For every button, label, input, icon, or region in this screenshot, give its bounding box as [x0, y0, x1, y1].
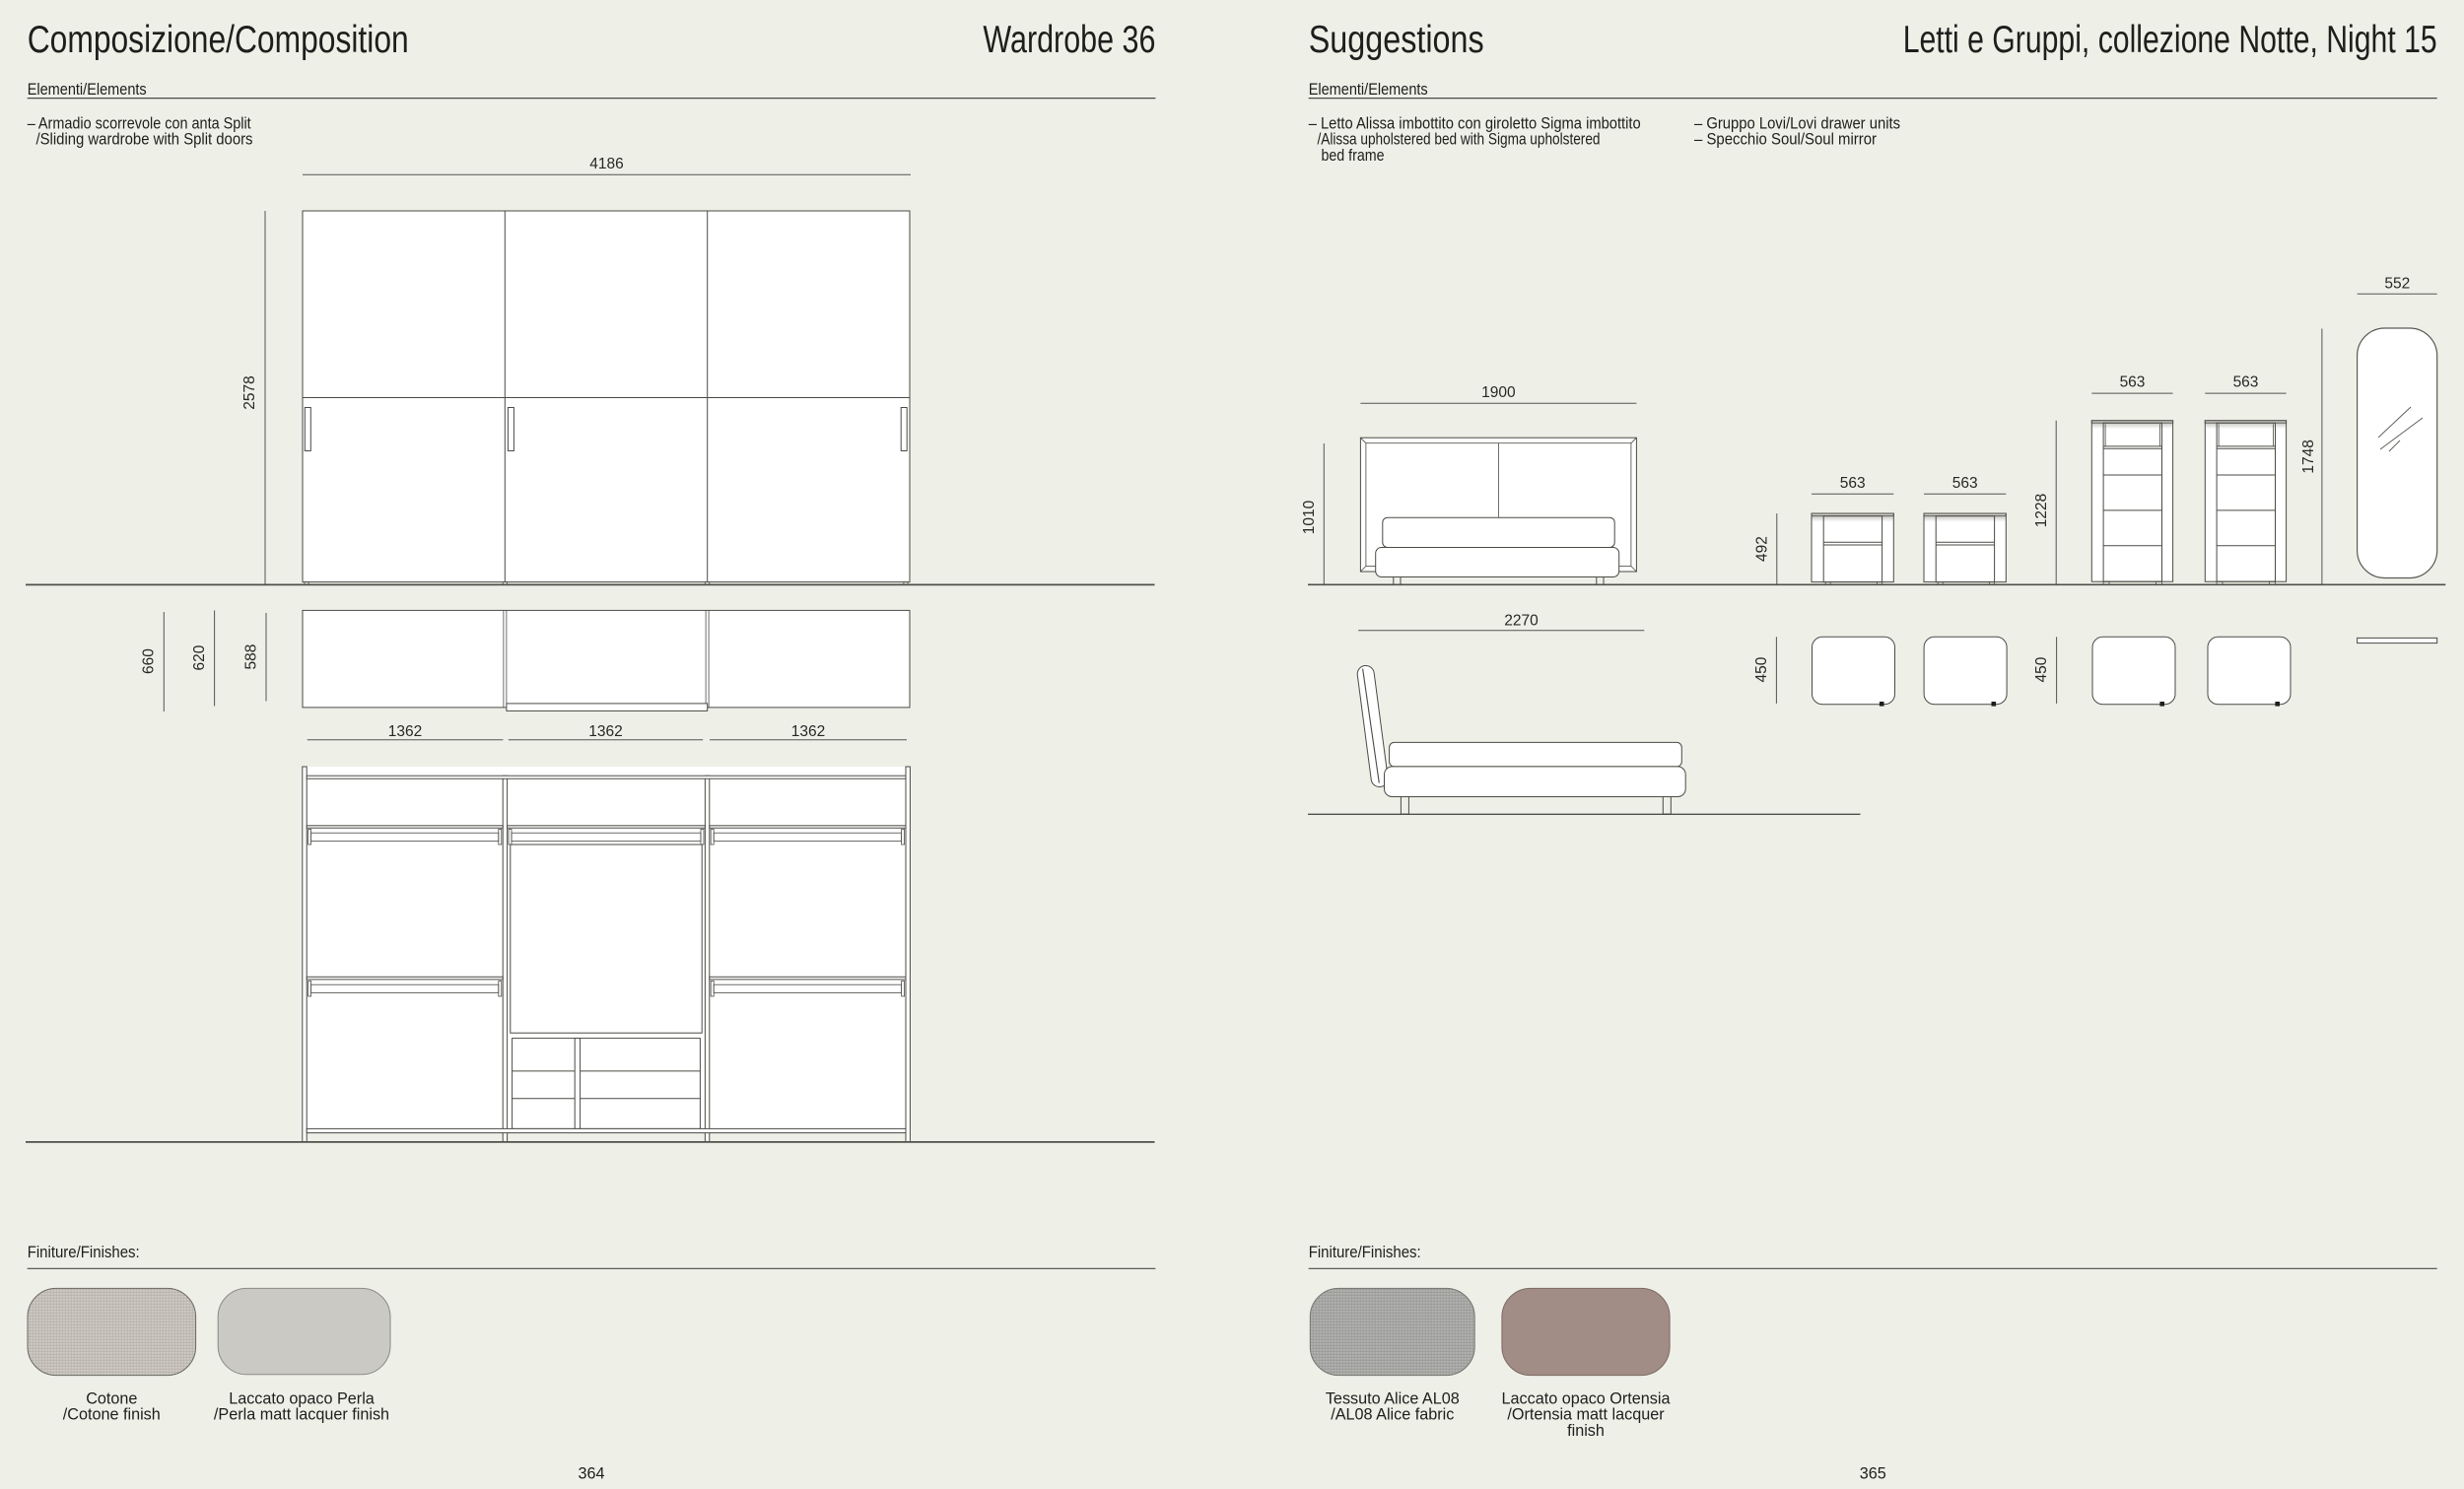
svg-text:Letti e Gruppi, collezione Not: Letti e Gruppi, collezione Notte, Night … [1903, 19, 2437, 61]
svg-text:2578: 2578 [241, 375, 258, 409]
svg-text:588: 588 [242, 644, 259, 670]
svg-text:Suggestions: Suggestions [1309, 19, 1484, 61]
svg-text:364: 364 [578, 1464, 604, 1482]
svg-text:– Specchio Soul/Soul mirror: – Specchio Soul/Soul mirror [1694, 131, 1878, 149]
svg-text:/Perla matt lacquer finish: /Perla matt lacquer finish [214, 1406, 389, 1424]
svg-text:Elementi/Elements: Elementi/Elements [1309, 80, 1428, 99]
svg-text:Finiture/Finishes:: Finiture/Finishes: [28, 1244, 140, 1261]
svg-text:/AL08 Alice fabric: /AL08 Alice fabric [1331, 1406, 1454, 1424]
svg-text:Composizione/Composition: Composizione/Composition [28, 19, 409, 61]
svg-text:450: 450 [1753, 656, 1770, 682]
svg-text:492: 492 [1753, 536, 1770, 562]
svg-text:/Sliding wardrobe with Split d: /Sliding wardrobe with Split doors [36, 131, 253, 149]
svg-text:563: 563 [1840, 475, 1866, 492]
svg-text:1010: 1010 [1301, 500, 1318, 534]
svg-text:450: 450 [2033, 656, 2050, 682]
svg-text:/Alissa upholstered bed with S: /Alissa upholstered bed with Sigma uphol… [1318, 131, 1601, 149]
svg-text:1748: 1748 [2300, 440, 2317, 473]
svg-text:Elementi/Elements: Elementi/Elements [28, 80, 147, 99]
svg-text:563: 563 [1952, 475, 1978, 492]
svg-text:620: 620 [191, 644, 208, 670]
svg-text:bed frame: bed frame [1322, 147, 1385, 165]
svg-text:2270: 2270 [1504, 613, 1539, 630]
svg-text:– Gruppo Lovi/Lovi drawer unit: – Gruppo Lovi/Lovi drawer units [1694, 114, 1900, 132]
svg-text:– Armadio scorrevole con anta: – Armadio scorrevole con anta Split [28, 114, 251, 132]
svg-text:1362: 1362 [388, 723, 422, 740]
svg-text:Wardrobe 36: Wardrobe 36 [983, 19, 1155, 61]
svg-text:Finiture/Finishes:: Finiture/Finishes: [1309, 1244, 1421, 1261]
svg-text:660: 660 [141, 648, 158, 674]
svg-text:563: 563 [2120, 374, 2146, 391]
svg-text:4186: 4186 [589, 156, 623, 172]
svg-text:/Cotone finish: /Cotone finish [63, 1406, 161, 1424]
svg-text:1900: 1900 [1481, 384, 1516, 401]
svg-text:552: 552 [2384, 276, 2410, 293]
svg-text:365: 365 [1860, 1464, 1886, 1482]
svg-text:finish: finish [1567, 1422, 1605, 1440]
svg-text:1362: 1362 [588, 723, 622, 740]
svg-text:1362: 1362 [791, 723, 825, 740]
svg-text:– Letto Alissa imbottito con g: – Letto Alissa imbottito con giroletto S… [1309, 114, 1641, 132]
svg-text:1228: 1228 [2033, 494, 2050, 527]
svg-text:563: 563 [2233, 374, 2259, 391]
